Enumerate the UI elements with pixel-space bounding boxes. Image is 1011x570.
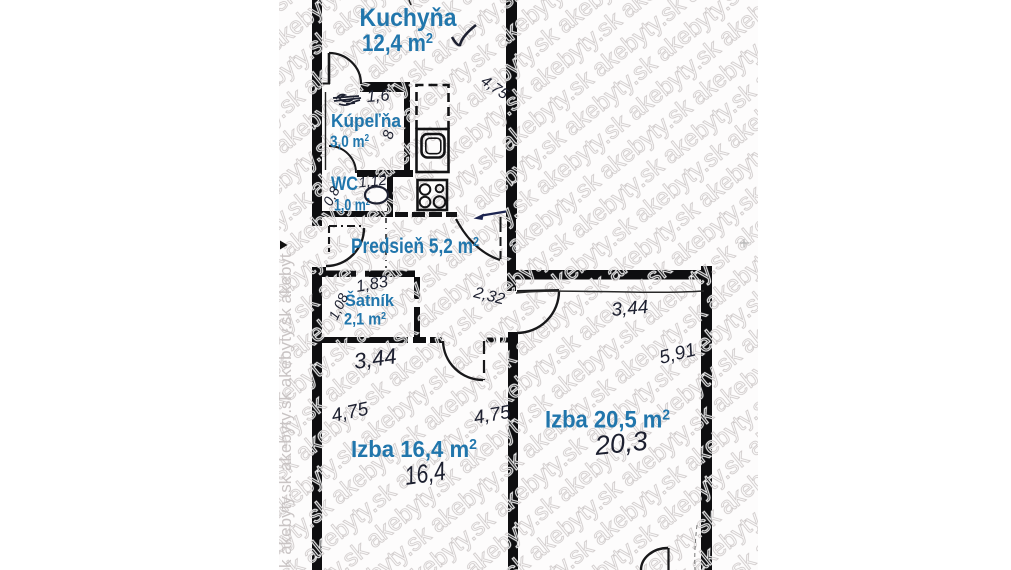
svg-text:Kúpeľňa: Kúpeľňa <box>331 111 402 131</box>
svg-text:1,0 m2: 1,0 m2 <box>334 197 370 215</box>
svg-text:16,4: 16,4 <box>403 456 448 491</box>
svg-text:Kuchyňa: Kuchyňa <box>360 4 458 32</box>
svg-text:3,0 m2: 3,0 m2 <box>330 132 369 151</box>
svg-text:20,3: 20,3 <box>592 426 648 461</box>
svg-text:3,44: 3,44 <box>611 297 650 321</box>
svg-text:Šatník: Šatník <box>345 291 395 310</box>
svg-text:Izba 16,4 m2: Izba 16,4 m2 <box>351 436 477 462</box>
svg-text:k akebyty.sk akebyty.sk akebyt: k akebyty.sk akebyty.sk akebyty.sk akeby… <box>276 253 295 568</box>
svg-text:1,6: 1,6 <box>366 86 391 106</box>
svg-text:12,4 m2: 12,4 m2 <box>362 30 433 57</box>
svg-text:Predsieň 5,2 m2: Predsieň 5,2 m2 <box>351 234 479 258</box>
svg-text:2,1 m2: 2,1 m2 <box>344 311 386 329</box>
